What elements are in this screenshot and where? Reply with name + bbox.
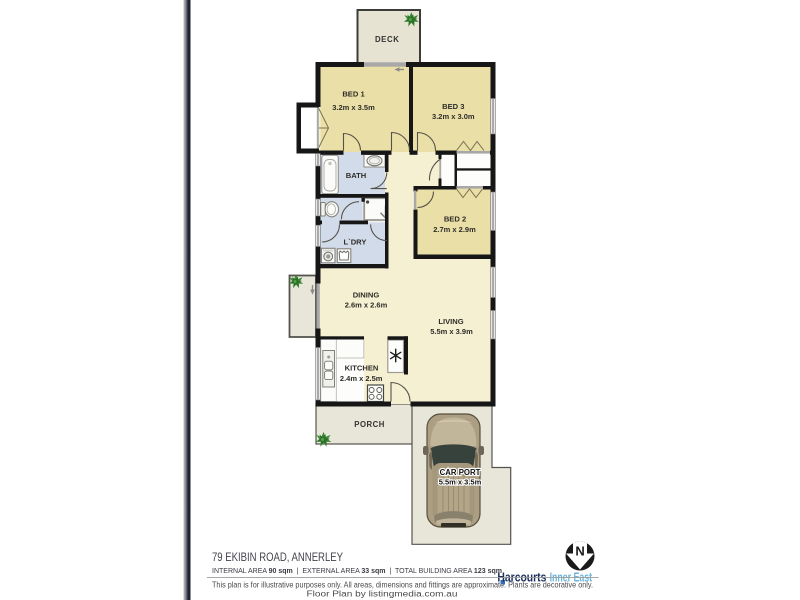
svg-text:L`DRY: L`DRY bbox=[344, 238, 367, 247]
svg-text:Harcourts: Harcourts bbox=[497, 569, 546, 584]
svg-text:Inner East: Inner East bbox=[550, 569, 593, 584]
svg-text:Floor Plan by listingmedia.com: Floor Plan by listingmedia.com.au bbox=[307, 590, 458, 599]
svg-text:DECK: DECK bbox=[375, 35, 400, 44]
svg-text:LIVING: LIVING bbox=[438, 317, 463, 326]
svg-text:BED 3: BED 3 bbox=[442, 102, 464, 111]
svg-text:INTERNAL AREA 90 sqm | EXTER: INTERNAL AREA 90 sqm | EXTERNAL AREA 33 … bbox=[212, 566, 502, 575]
svg-text:2.6m x 2.6m: 2.6m x 2.6m bbox=[345, 301, 388, 310]
svg-text:79 EKIBIN ROAD, ANNERLEY: 79 EKIBIN ROAD, ANNERLEY bbox=[212, 550, 343, 564]
svg-text:3.2m x 3.0m: 3.2m x 3.0m bbox=[432, 112, 475, 121]
svg-text:CAR PORT: CAR PORT bbox=[440, 468, 481, 477]
svg-text:5.5m x 3.9m: 5.5m x 3.9m bbox=[430, 327, 473, 336]
svg-text:N: N bbox=[575, 544, 584, 559]
svg-text:5.5m x 3.5m: 5.5m x 3.5m bbox=[439, 478, 482, 487]
svg-text:2.4m x 2.5m: 2.4m x 2.5m bbox=[340, 374, 383, 383]
svg-text:BATH: BATH bbox=[346, 171, 367, 180]
svg-text:BED 1: BED 1 bbox=[342, 90, 365, 99]
svg-text:DINING: DINING bbox=[353, 291, 380, 300]
svg-text:2.7m x 2.9m: 2.7m x 2.9m bbox=[433, 225, 476, 234]
svg-text:KITCHEN: KITCHEN bbox=[345, 363, 379, 372]
svg-text:3.2m x 3.5m: 3.2m x 3.5m bbox=[332, 103, 375, 112]
svg-text:PORCH: PORCH bbox=[354, 420, 385, 429]
svg-text:BED 2: BED 2 bbox=[444, 214, 466, 223]
